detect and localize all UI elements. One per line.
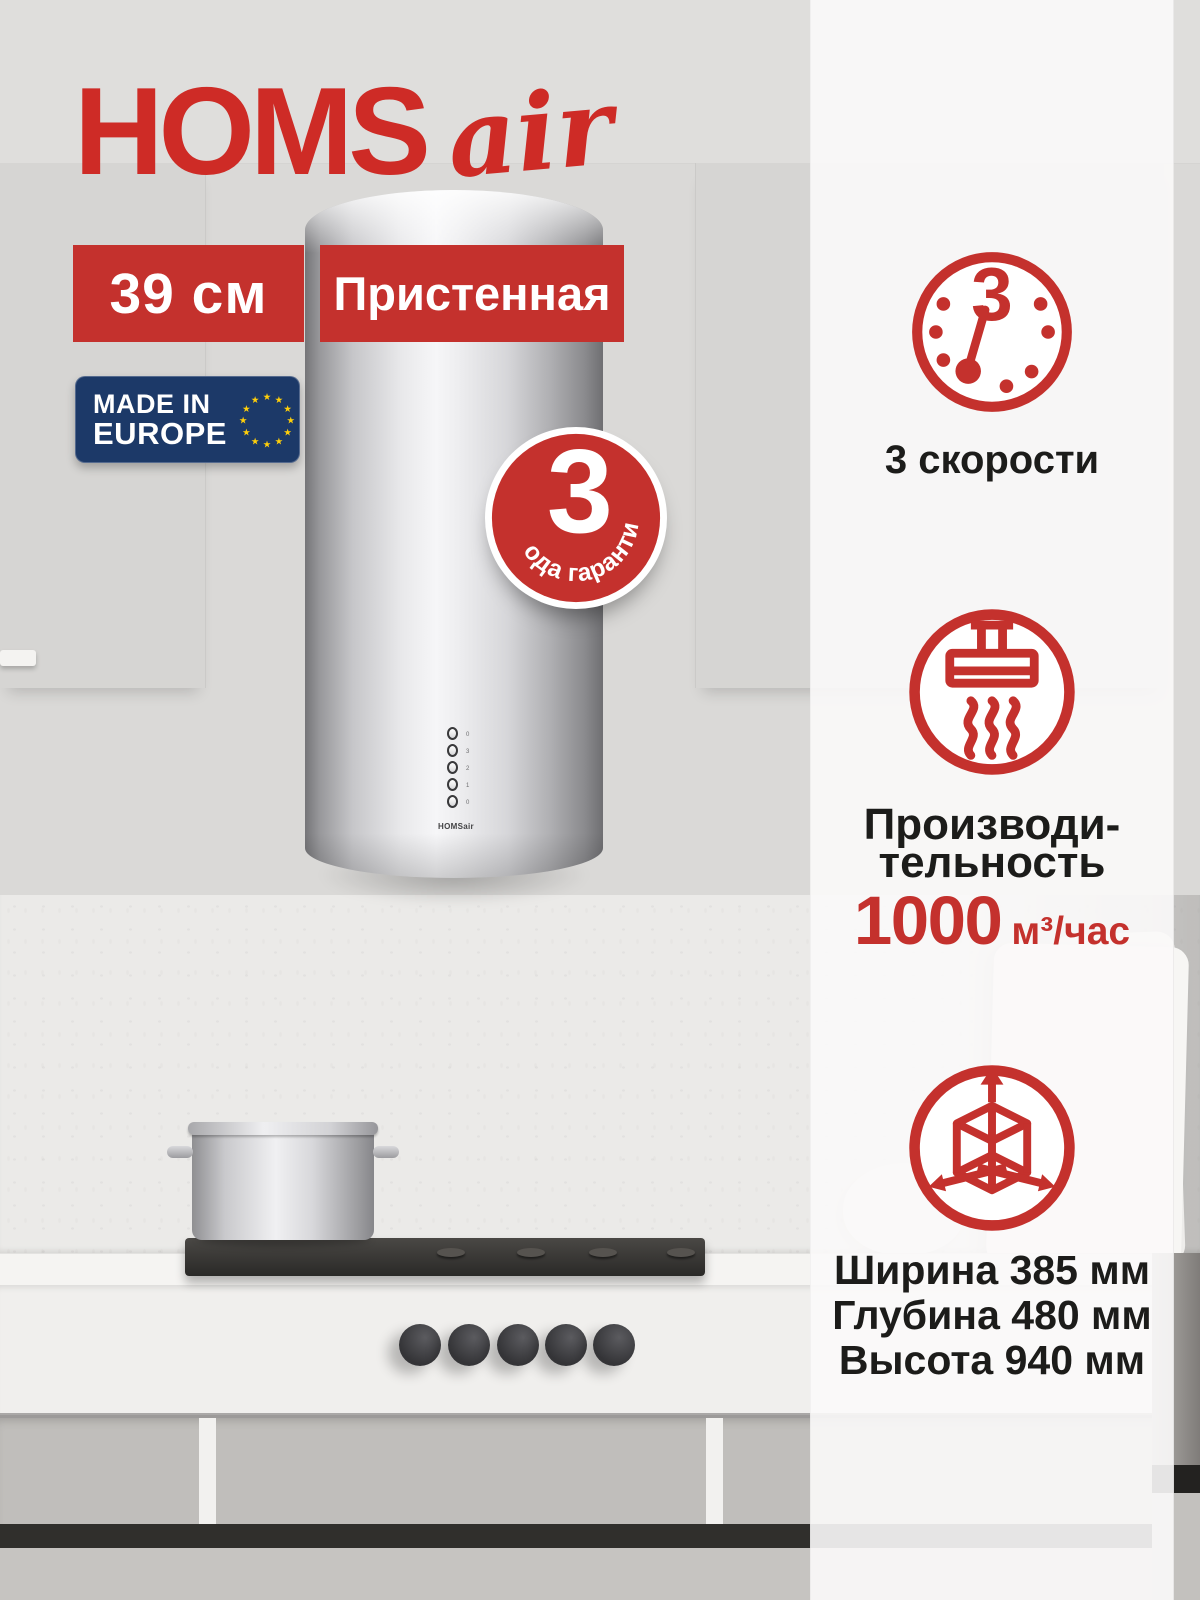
performance-unit: м³/час bbox=[1011, 912, 1130, 951]
dimension-width: Ширина 385 мм bbox=[811, 1248, 1173, 1293]
performance-value: 1000 bbox=[854, 886, 1002, 955]
speeds-label: 3 скорости bbox=[811, 438, 1173, 483]
burner-cap bbox=[437, 1248, 465, 1257]
hood-button: 2 bbox=[447, 761, 458, 774]
svg-text:★: ★ bbox=[283, 403, 292, 414]
svg-text:★: ★ bbox=[275, 436, 284, 447]
hood-button: 0 bbox=[447, 795, 458, 808]
svg-text:★: ★ bbox=[275, 395, 284, 406]
europe-line: EUROPE bbox=[93, 418, 227, 449]
clock-3-icon: 3 bbox=[907, 247, 1077, 417]
mount-type-badge: Пристенная bbox=[320, 245, 624, 342]
burner-cap bbox=[589, 1248, 617, 1257]
brand-logo-air: air bbox=[443, 73, 616, 193]
cabinet-handle bbox=[0, 650, 36, 666]
hood-panel-logo: HOMSair bbox=[432, 822, 480, 831]
size-badge: 39 см bbox=[73, 245, 304, 342]
svg-text:★: ★ bbox=[283, 427, 292, 438]
hob-knob bbox=[399, 1324, 441, 1366]
svg-text:★: ★ bbox=[263, 391, 272, 402]
hood-steam-icon bbox=[904, 604, 1080, 780]
made-in-europe-badge: MADE IN EUROPE ★★★ ★★★ ★★★ ★★★ bbox=[75, 376, 300, 463]
made-in-line: MADE IN bbox=[93, 391, 227, 418]
hob-knob bbox=[593, 1324, 635, 1366]
hood-button-label: 0 bbox=[466, 732, 469, 738]
pot-handle-right bbox=[373, 1146, 399, 1158]
svg-text:★: ★ bbox=[286, 415, 295, 426]
burner-cap bbox=[667, 1248, 695, 1257]
burner-cap bbox=[517, 1248, 545, 1257]
svg-text:★: ★ bbox=[239, 415, 248, 426]
brand-logo-homs: HOMS bbox=[74, 70, 426, 194]
pot-handle-left bbox=[167, 1146, 193, 1158]
brand-logo: HOMS air bbox=[74, 70, 613, 194]
performance-label-line2: тельность bbox=[811, 844, 1173, 882]
hood-button-label: 2 bbox=[466, 766, 469, 772]
hob-knob bbox=[448, 1324, 490, 1366]
svg-text:★: ★ bbox=[263, 439, 272, 450]
performance-value-row: 1000 м³/час bbox=[811, 886, 1173, 955]
dimension-height: Высота 940 мм bbox=[811, 1338, 1173, 1383]
dimensions-cube-icon bbox=[904, 1060, 1080, 1236]
warranty-badge: 3 года гарантии bbox=[485, 427, 667, 609]
hood-button: 0 bbox=[447, 727, 458, 740]
svg-text:★: ★ bbox=[251, 395, 260, 406]
hood-button: 1 bbox=[447, 778, 458, 791]
pot-rim bbox=[188, 1122, 378, 1135]
hood-button-label: 1 bbox=[466, 783, 469, 789]
svg-text:★: ★ bbox=[251, 436, 260, 447]
eu-stars-icon: ★★★ ★★★ ★★★ ★★★ bbox=[235, 386, 299, 454]
made-in-europe-text: MADE IN EUROPE bbox=[93, 391, 227, 449]
warranty-badge-icon: 3 года гарантии bbox=[485, 427, 667, 609]
svg-text:★: ★ bbox=[242, 427, 251, 438]
product-card: 0 3 2 1 0 HOMSair HOMS air 39 см Пристен… bbox=[0, 0, 1200, 1600]
warranty-number: 3 bbox=[547, 427, 613, 558]
dimension-depth: Глубина 480 мм bbox=[811, 1293, 1173, 1338]
hood-button-label: 0 bbox=[466, 800, 469, 806]
hob-knob bbox=[545, 1324, 587, 1366]
hood-button: 3 bbox=[447, 744, 458, 757]
cooking-pot bbox=[192, 1130, 374, 1240]
hood-button-label: 3 bbox=[466, 749, 469, 755]
svg-text:★: ★ bbox=[242, 403, 251, 414]
dimensions-label: Ширина 385 мм Глубина 480 мм Высота 940 … bbox=[811, 1248, 1173, 1383]
performance-label: Производи- тельность bbox=[811, 806, 1173, 882]
hob-knob bbox=[497, 1324, 539, 1366]
features-sidebar: 3 3 скорости Произв bbox=[810, 0, 1174, 1600]
